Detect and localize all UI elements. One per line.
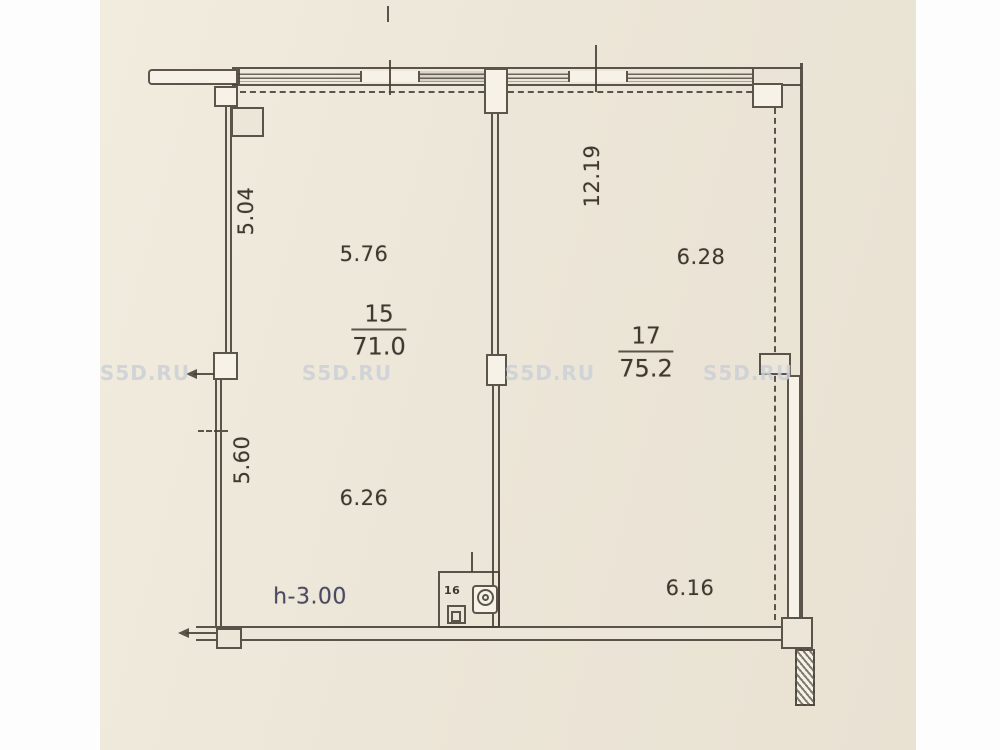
scanned-floor-plan: 5.04 5.76 12.19 6.28 5.60 6.26 6.16 15 7… xyxy=(0,0,1000,750)
room17-number: 17 xyxy=(618,324,673,353)
window-hatch-segment xyxy=(238,71,360,82)
room15-label: 15 71.0 xyxy=(351,302,406,361)
window-panel xyxy=(568,71,628,82)
watermark: S5D.RU xyxy=(302,361,392,385)
balcony-rail xyxy=(148,69,238,85)
dim-left-wall-upper: 5.04 xyxy=(234,187,258,236)
right-window-band xyxy=(787,375,801,622)
window-hatch-segment xyxy=(628,71,752,82)
sink-basin-icon xyxy=(451,611,461,622)
room17-label: 17 75.2 xyxy=(618,324,673,383)
floor-plan-paper: 5.04 5.76 12.19 6.28 5.60 6.26 6.16 15 7… xyxy=(100,0,916,750)
top-exterior-wall xyxy=(232,67,801,86)
bottom-exterior-wall xyxy=(196,626,802,641)
window-gray-segment xyxy=(420,71,488,82)
window-hatch-segment xyxy=(508,71,568,82)
corner-box-bottom-left xyxy=(216,628,242,649)
toilet-drain-icon xyxy=(482,594,489,601)
wall-tick xyxy=(595,45,597,92)
window-mullion xyxy=(238,69,240,84)
left-wall-column xyxy=(213,352,238,380)
partition-wall-upper xyxy=(491,114,499,354)
bathroom-tick xyxy=(471,552,473,572)
dim-room17-bottom: 6.16 xyxy=(666,576,715,600)
left-wall-upper xyxy=(225,107,232,354)
corner-box-bottom-right xyxy=(781,617,813,649)
wall-notch-top-left xyxy=(231,107,264,137)
arrow-line xyxy=(194,373,214,375)
dim-room15-top: 5.76 xyxy=(340,242,389,266)
window-mullion xyxy=(752,69,754,84)
top-axis-tick xyxy=(387,6,389,22)
watermark: S5D.RU xyxy=(505,361,595,385)
pillar-top-left xyxy=(214,86,238,107)
dim-right-wall-vertical: 12.19 xyxy=(580,145,604,208)
partition-top-column xyxy=(484,68,508,114)
wall-stub-hatched xyxy=(795,649,815,706)
dim-room15-bottom: 6.26 xyxy=(340,486,389,510)
arrow-head-icon xyxy=(178,628,189,638)
ceiling-height-note: h-3.00 xyxy=(273,585,347,610)
arrow-line xyxy=(186,632,216,634)
left-wall-tick-marks xyxy=(198,430,228,432)
dim-left-wall-lower: 5.60 xyxy=(230,436,254,485)
watermark: S5D.RU xyxy=(703,361,793,385)
partition-mid-column xyxy=(486,354,507,386)
room16-number: 16 xyxy=(444,584,460,597)
pillar-top-right xyxy=(752,83,783,108)
dim-room17-top: 6.28 xyxy=(677,245,726,269)
room15-number: 15 xyxy=(351,302,406,331)
wall-tick xyxy=(389,60,391,95)
watermark: S5D.RU xyxy=(100,361,190,385)
left-wall-lower xyxy=(215,380,222,628)
room15-area: 71.0 xyxy=(351,331,406,361)
room17-area: 75.2 xyxy=(618,353,673,383)
